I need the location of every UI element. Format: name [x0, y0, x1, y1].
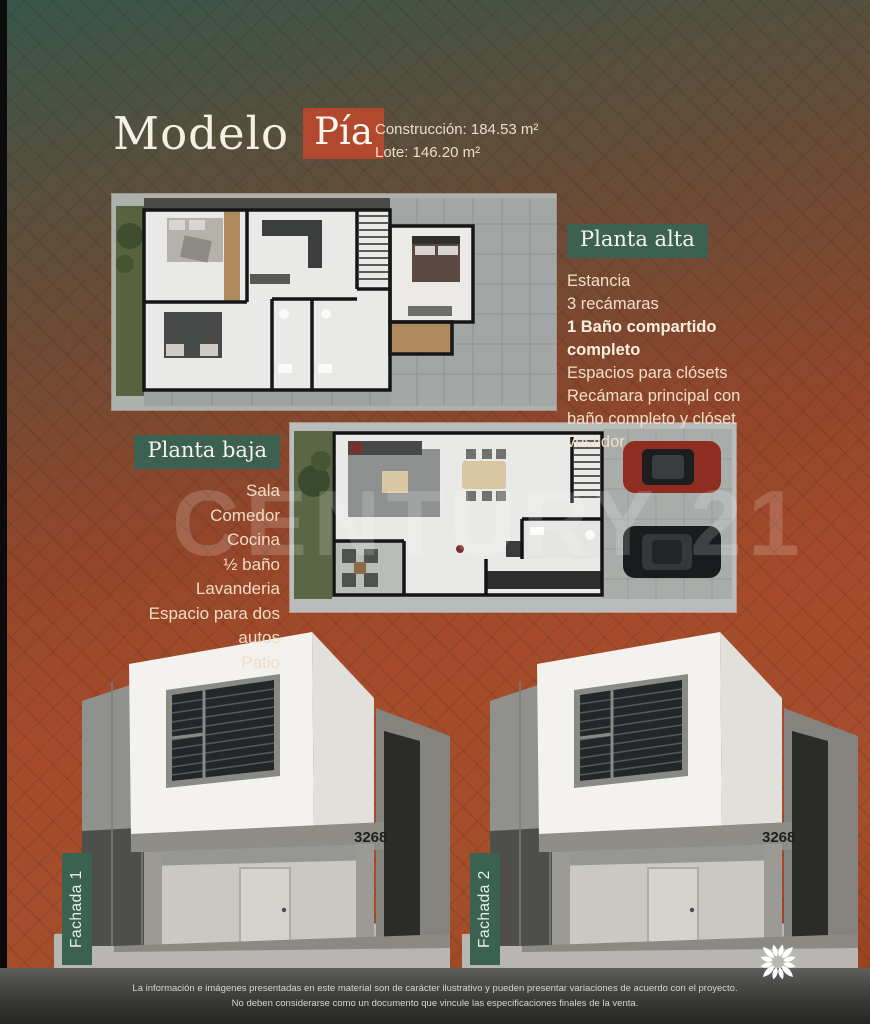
house-number-2: 3268: [762, 829, 795, 846]
left-edge-strip: [0, 0, 7, 968]
planta-alta-rendering: [112, 194, 556, 410]
construction-area: Construcción: 184.53 m²: [375, 118, 538, 141]
flyer-page: Modelo Pía Construcción: 184.53 m² Lote:…: [0, 0, 870, 1024]
planta-baja-panel: Planta baja SalaComedorCocina½ bañoLavan…: [110, 435, 280, 675]
feature-item: Estancia: [567, 270, 755, 293]
feature-item: ½ baño: [110, 553, 280, 578]
lot-area: Lote: 146.20 m²: [375, 141, 538, 164]
fachada-1-label: Fachada 1: [62, 853, 92, 965]
fachada-2-rendering: 3268: [462, 616, 858, 976]
feature-item: Comedor: [110, 504, 280, 529]
feature-item: 3 recámaras: [567, 293, 755, 316]
model-name-badge: Pía: [303, 108, 384, 159]
feature-item: Patio: [110, 651, 280, 676]
disclaimer-line-2: No deben considerarse como un documento …: [0, 996, 870, 1011]
specs: Construcción: 184.53 m² Lote: 146.20 m²: [375, 118, 538, 164]
disclaimer-footer: La información e imágenes presentadas en…: [0, 968, 870, 1024]
feature-item: Sala: [110, 479, 280, 504]
planta-baja-features: SalaComedorCocina½ bañoLavanderiaEspacio…: [110, 479, 280, 675]
house-number-1: 3268: [354, 829, 387, 846]
feature-item: Espacio para dos autos: [110, 602, 280, 651]
feature-item: Cocina: [110, 528, 280, 553]
feature-item: Recámara principal con baño completo y c…: [567, 385, 755, 454]
fachada-2-house: 3268: [462, 616, 858, 976]
planta-alta-label: Planta alta: [567, 224, 708, 258]
planta-alta-panel: Planta alta Estancia3 recámaras1 Baño co…: [567, 224, 799, 454]
feature-item: Espacios para clósets: [567, 362, 755, 385]
feature-item: 1 Baño compartido completo: [567, 316, 755, 362]
disclaimer-line-1: La información e imágenes presentadas en…: [0, 981, 870, 996]
planta-alta-floorplan: [112, 194, 556, 410]
planta-baja-label: Planta baja: [134, 435, 280, 469]
header: Modelo Pía: [113, 108, 384, 159]
fachada-2-label: Fachada 2: [470, 853, 500, 965]
century21-seal-icon: [754, 938, 802, 986]
feature-item: Lavanderia: [110, 577, 280, 602]
model-title: Modelo: [113, 111, 289, 156]
planta-alta-features: Estancia3 recámaras1 Baño compartido com…: [567, 270, 755, 454]
